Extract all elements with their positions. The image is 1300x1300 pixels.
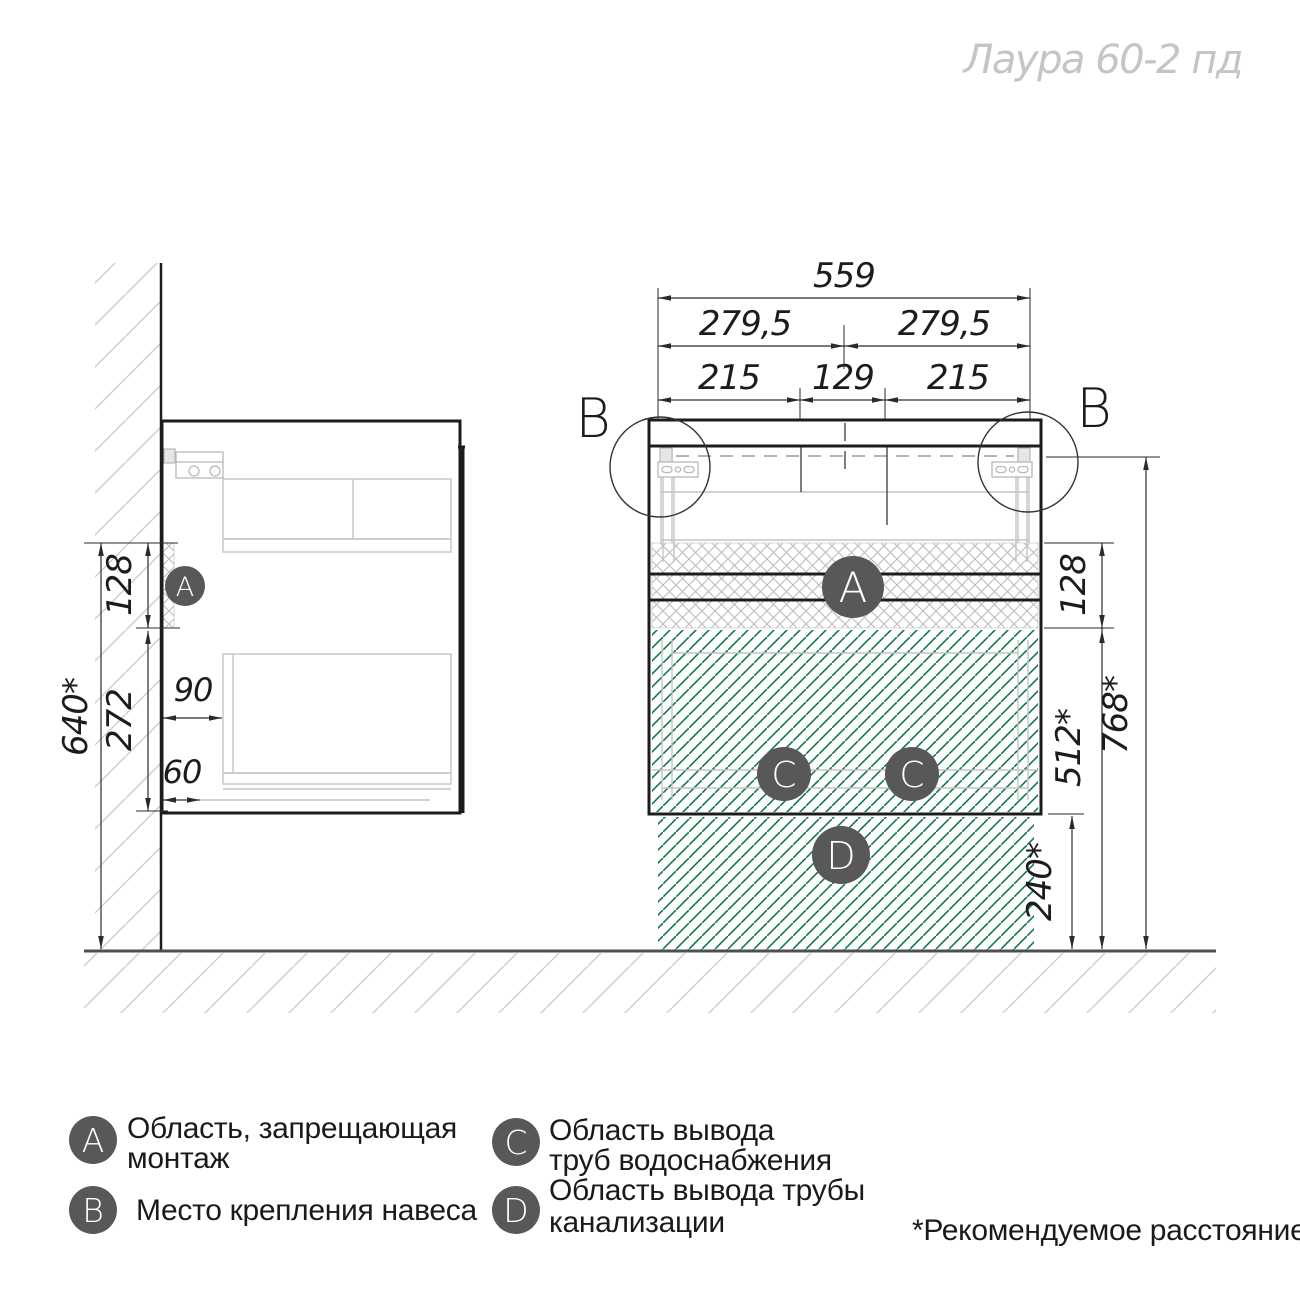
badge-c-left-letter: C <box>771 755 796 796</box>
badge-a-side-letter: A <box>176 572 194 603</box>
b-marker-left: B <box>575 387 610 450</box>
b-marker-right: B <box>1076 377 1111 440</box>
badge-c-right-letter: C <box>899 755 924 796</box>
installation-drawing-page: 559 279,5 279,5 215 129 215 128 512* 768… <box>0 0 1300 1300</box>
drawing-title: Лаура 60-2 пд <box>961 37 1242 83</box>
area-c-water-pipes <box>652 630 1038 812</box>
legend-badge-b-letter: B <box>82 1191 104 1230</box>
legend-d-line2: канализации <box>549 1206 725 1239</box>
dim-half-right: 279,5 <box>898 304 990 344</box>
dim-half-left: 279,5 <box>699 304 791 344</box>
legend-badge-a-letter: A <box>82 1121 105 1160</box>
dim-bottom-gap: 60 <box>163 753 202 791</box>
dim-total-width: 559 <box>813 256 875 296</box>
badge-a-front-letter: A <box>839 563 868 612</box>
dim-span-right: 215 <box>927 358 989 398</box>
dim-drain-height: 240* <box>1020 843 1060 921</box>
drawing-canvas: 559 279,5 279,5 215 129 215 128 512* 768… <box>0 0 1300 1300</box>
dim-span-center: 129 <box>812 358 874 398</box>
legend-c-line1: Область вывода <box>549 1114 775 1147</box>
badge-d-letter: D <box>826 834 855 878</box>
dim-wall-clear: 640* <box>56 678 96 756</box>
dim-below-band-right: 512* <box>1049 709 1089 787</box>
dim-back-gap: 90 <box>174 671 213 709</box>
dim-below-band-left: 272 <box>100 689 140 751</box>
dim-mount-height: 768* <box>1096 676 1136 754</box>
legend-a-line2: монтаж <box>127 1142 229 1175</box>
legend-d-line1: Область вывода трубы <box>549 1174 865 1207</box>
dim-band-left: 128 <box>100 554 140 616</box>
legend-badge-d-letter: D <box>503 1191 528 1230</box>
dim-span-left: 215 <box>698 358 760 398</box>
legend-a-line1: Область, запрещающая <box>127 1112 457 1145</box>
floor <box>84 951 1216 1013</box>
floor-hatch <box>84 953 1216 1013</box>
legend-c-line2: труб водоснабжения <box>549 1144 832 1177</box>
legend-footnote: *Рекомендуемое расстояние <box>912 1214 1300 1247</box>
dim-band-right: 128 <box>1054 554 1094 616</box>
legend-badge-c-letter: C <box>504 1123 527 1162</box>
legend-b-line1: Место крепления навеса <box>136 1194 478 1227</box>
